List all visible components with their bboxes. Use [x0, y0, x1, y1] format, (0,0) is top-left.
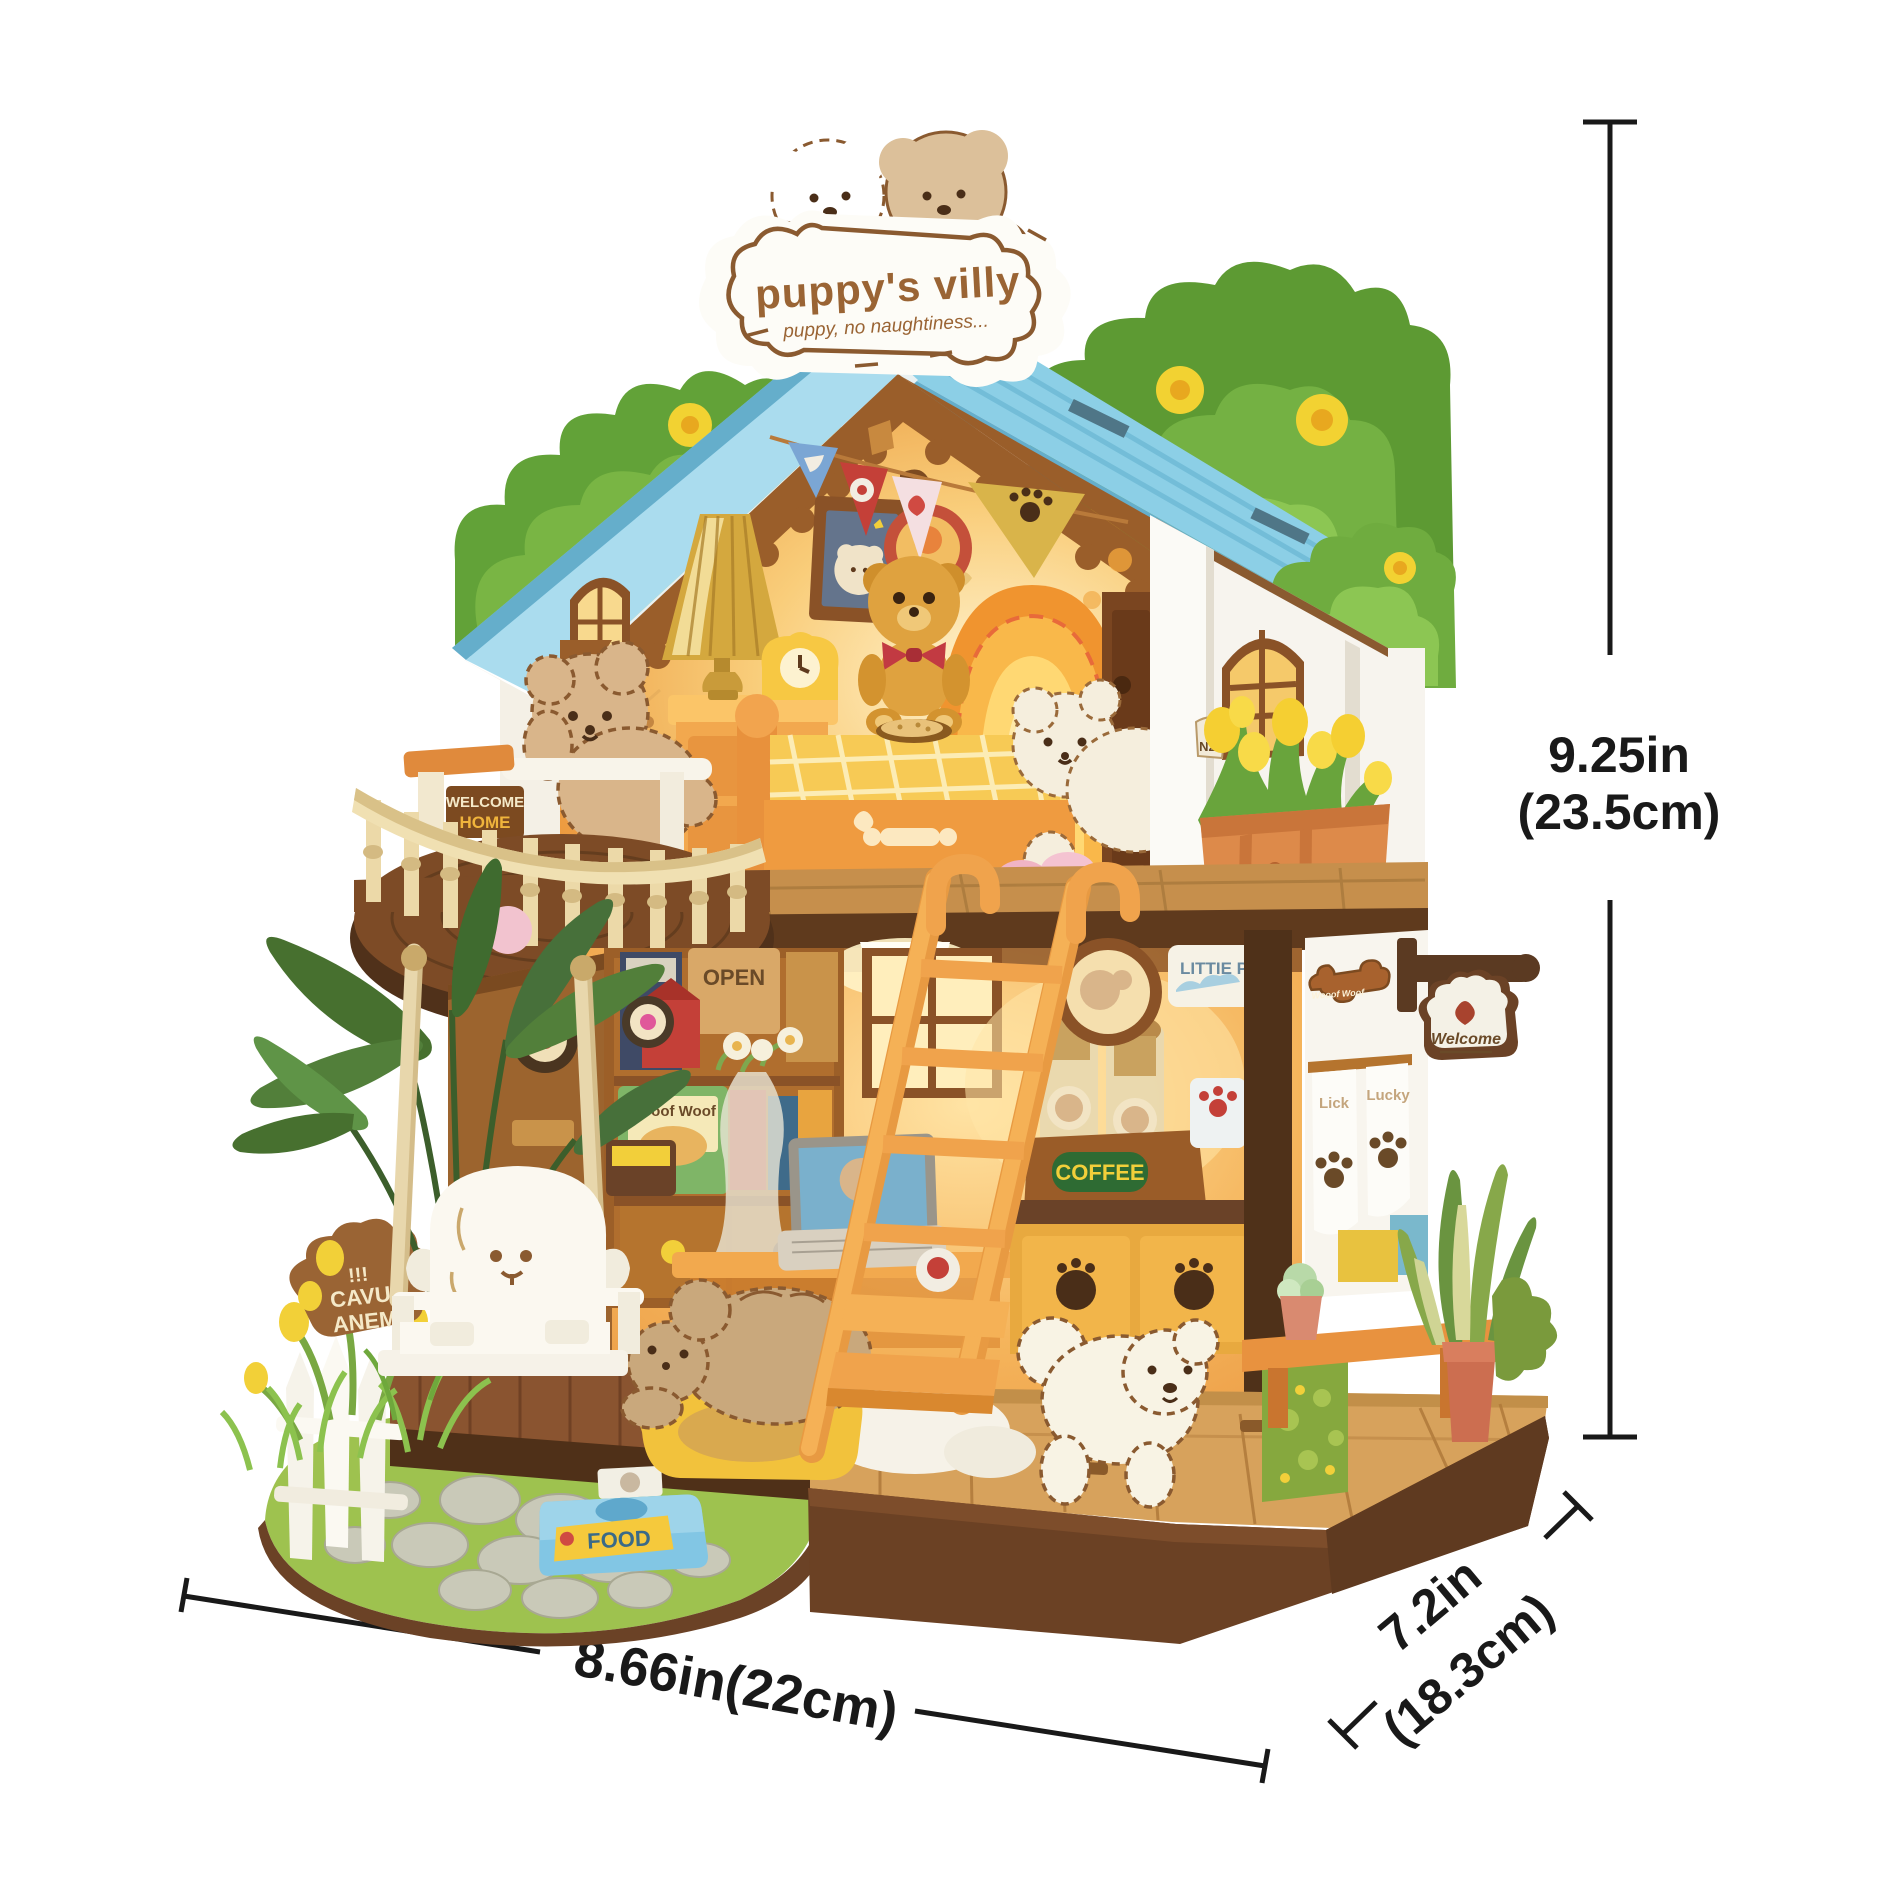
- svg-text:Welcome: Welcome: [1431, 1031, 1501, 1048]
- svg-text:COFFEE: COFFEE: [1055, 1160, 1144, 1185]
- svg-text:LITTIE P: LITTIE P: [1180, 959, 1248, 978]
- svg-text:WELCOME: WELCOME: [446, 794, 524, 811]
- svg-text:HOME: HOME: [460, 813, 511, 832]
- svg-text:Lick: Lick: [1319, 1095, 1350, 1112]
- svg-text:FOOD: FOOD: [587, 1525, 652, 1553]
- svg-text:(23.5cm): (23.5cm): [1518, 784, 1721, 840]
- svg-text:Lucky: Lucky: [1366, 1087, 1410, 1104]
- svg-text:OPEN: OPEN: [703, 965, 765, 990]
- svg-text:9.25in: 9.25in: [1548, 727, 1690, 783]
